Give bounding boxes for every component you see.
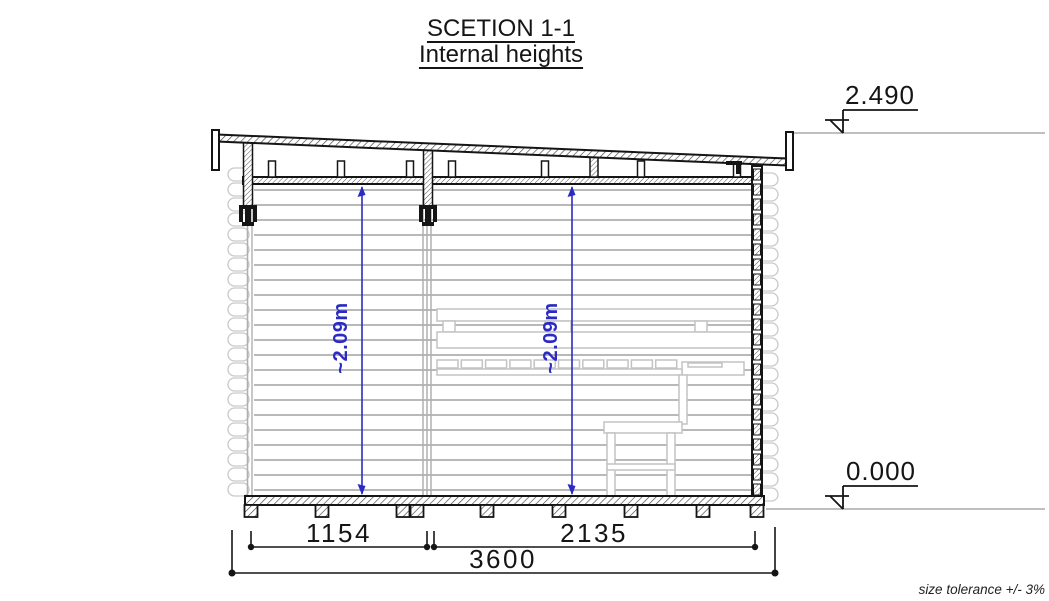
dimension-dot [431,544,437,550]
bench-slat [461,360,482,368]
wall-log-block [754,229,761,240]
dimension-dot [772,570,779,577]
dimension-dot [229,570,236,577]
screw-jacks [239,205,437,226]
bench-slat [583,360,604,368]
log-end-icon [228,333,249,346]
log-end-icon [228,363,249,376]
log-end-icon [228,243,249,256]
roof-batten [542,161,549,177]
wall-log-block [754,439,761,450]
jack-side [433,205,437,222]
log-end-icon [228,453,249,466]
step-bench-top [604,422,682,433]
roof-batten [638,161,645,177]
section-drawing: 2.490 0.000 ~2.09m ~2.09m [0,0,1049,601]
post-left [244,140,253,206]
log-end-icon [228,258,249,271]
wall-log-block [754,259,761,270]
bench-slat [486,360,507,368]
foundation-block [553,505,566,517]
arrow-up-icon [568,186,576,197]
level-value-bottom: 0.000 [846,456,916,486]
jack-side [253,205,257,222]
roof-batten [338,161,345,177]
wall-log-block [754,349,761,360]
fascia-left [212,130,219,170]
wall-log-block [754,394,761,405]
roof-batten [407,161,414,177]
width-value-left-room: 1154 [306,518,372,548]
dimension-dot [752,544,758,550]
wall-log-block [754,379,761,390]
jack-foot [242,222,254,226]
wall-log-block [754,334,761,345]
foundation-block [481,505,494,517]
wall-log-block [754,364,761,375]
wall-log-block [754,169,761,180]
log-end-icon [228,483,249,496]
floor-slab [245,496,764,505]
bench-slat [607,360,628,368]
level-tick [830,496,843,509]
dimension-dot [424,544,430,550]
log-end-icon [228,408,249,421]
roof-bracket [726,161,742,165]
level-marker-top: 2.490 [794,80,1045,133]
wall-log-block [754,469,761,480]
log-end-icon [228,348,249,361]
width-dimensions: 1154 2135 3600 [229,518,779,577]
log-end-icon [228,393,249,406]
bench-slat [510,360,531,368]
sauna-benches [437,309,752,496]
wall-log-block [754,454,761,465]
log-end-icon [228,303,249,316]
log-end-icon [228,273,249,286]
level-marker-bottom: 0.000 [766,456,1045,509]
wall-log-block [754,199,761,210]
wall-log-block [754,409,761,420]
bench-slat [631,360,652,368]
jack-side [419,205,423,222]
bench-slat [688,363,722,367]
step-bench-rail [607,464,675,470]
foundation-blocks [245,505,764,517]
left-wall [248,184,253,496]
foundation-block [245,505,258,517]
wall-log-block [754,484,761,495]
bench-backrest-upper [437,309,752,321]
log-end-icon [228,228,249,241]
post-partition [424,150,433,206]
foundation-block [751,505,764,517]
fascia-right [786,132,793,170]
roof [212,130,793,174]
wall-log-block [754,304,761,315]
height-label-left: ~2.09m [330,302,352,373]
roof-panel [217,135,787,166]
wall-log-block [754,319,761,330]
level-tick [830,120,843,133]
roof-batten [269,161,276,177]
width-value-total: 3600 [469,544,537,574]
bench-slat [437,360,458,368]
jack-foot [422,222,434,226]
width-value-right-room: 2135 [560,518,628,548]
bench-backrest-lower [437,332,752,348]
log-end-icon [228,318,249,331]
jack-side [239,205,243,222]
wall-log-block [754,424,761,435]
foundation-block [397,505,410,517]
backrest-spacer [695,321,707,332]
foundation-block [625,505,638,517]
foundation-block [697,505,710,517]
log-end-icon [228,438,249,451]
wall-log-block [754,214,761,225]
wall-log-block [754,274,761,285]
height-label-right: ~2.09m [540,302,562,373]
roof-batten [449,161,456,177]
ceiling-board [243,177,753,184]
dimension-dot [248,544,254,550]
tolerance-note: size tolerance +/- 3% [919,582,1045,597]
backrest-spacer [443,321,455,332]
level-value-top: 2.490 [845,80,915,110]
log-end-icon [228,378,249,391]
wall-log-block [754,289,761,300]
wall-log-block [754,184,761,195]
bench-front-support [679,375,687,424]
foundation-block [316,505,329,517]
log-end-icon [228,288,249,301]
roof-bracket [736,165,741,174]
arrow-up-icon [358,186,366,197]
wall-log-block [754,244,761,255]
log-end-icon [228,423,249,436]
bench-slat [656,360,677,368]
foundation-block [411,505,424,517]
log-end-icon [228,468,249,481]
